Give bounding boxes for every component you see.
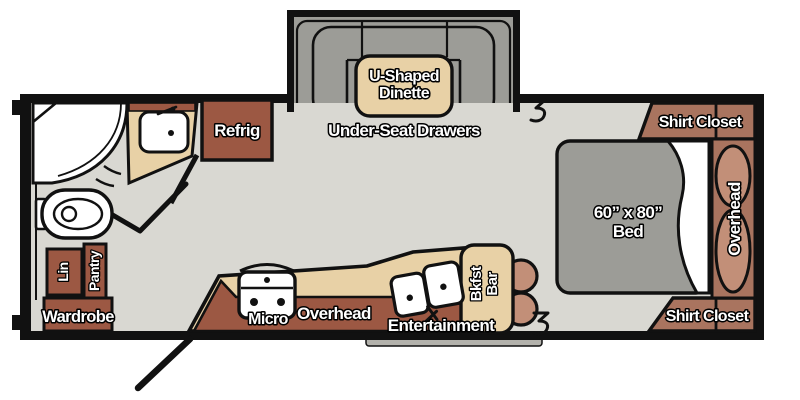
pantry-label: Pantry <box>86 250 102 291</box>
toilet-drain <box>62 207 76 221</box>
cooktop-knob-1 <box>264 277 270 283</box>
slideout-wall-top <box>287 10 520 17</box>
dinette-label-line2: Dinette <box>379 85 430 102</box>
bkfst-bar-label-line1: Bkfst <box>468 266 485 301</box>
toilet-icon <box>36 190 112 238</box>
overhead-bed-label: Overhead <box>725 182 744 256</box>
cooktop-knob-2 <box>250 298 258 306</box>
sink-faucet-knob <box>171 107 176 112</box>
under-seat-drawers-label: Under-Seat Drawers <box>328 121 480 140</box>
bed-label: Bed <box>613 222 644 241</box>
cooktop-micro-icon <box>239 265 295 319</box>
lin-label: Lin <box>55 262 71 281</box>
micro-label: Micro <box>248 311 288 328</box>
wall-left <box>20 94 31 340</box>
wardrobe-label: Wardrobe <box>42 308 114 326</box>
floorplan-svg: U-Shaped Dinette Under-Seat Drawers Refr… <box>0 0 800 400</box>
bathroom-sink-icon <box>140 112 188 152</box>
floorplan-page: U-Shaped Dinette Under-Seat Drawers Refr… <box>0 0 800 400</box>
vanity-backsplash <box>129 103 195 111</box>
entry-door <box>138 339 190 388</box>
entertainment-label: Entertainment <box>388 316 495 335</box>
shirt-closet-bottom-label: Shirt Closet <box>666 308 750 325</box>
overhead-kitchen-label: Overhead <box>297 304 371 323</box>
sink-drain-dot <box>168 130 174 136</box>
refrig-label: Refrig <box>214 121 260 140</box>
dinette-label-line1: U-Shaped <box>369 68 439 85</box>
bed-size-label: 60” x 80” <box>594 203 662 222</box>
frame-nub-bottom <box>12 315 21 330</box>
shirt-closet-top-label: Shirt Closet <box>659 114 743 131</box>
bkfst-bar-label-line2: Bar <box>484 272 501 296</box>
cooktop-knob-3 <box>277 298 285 306</box>
frame-nub-top <box>12 100 21 115</box>
